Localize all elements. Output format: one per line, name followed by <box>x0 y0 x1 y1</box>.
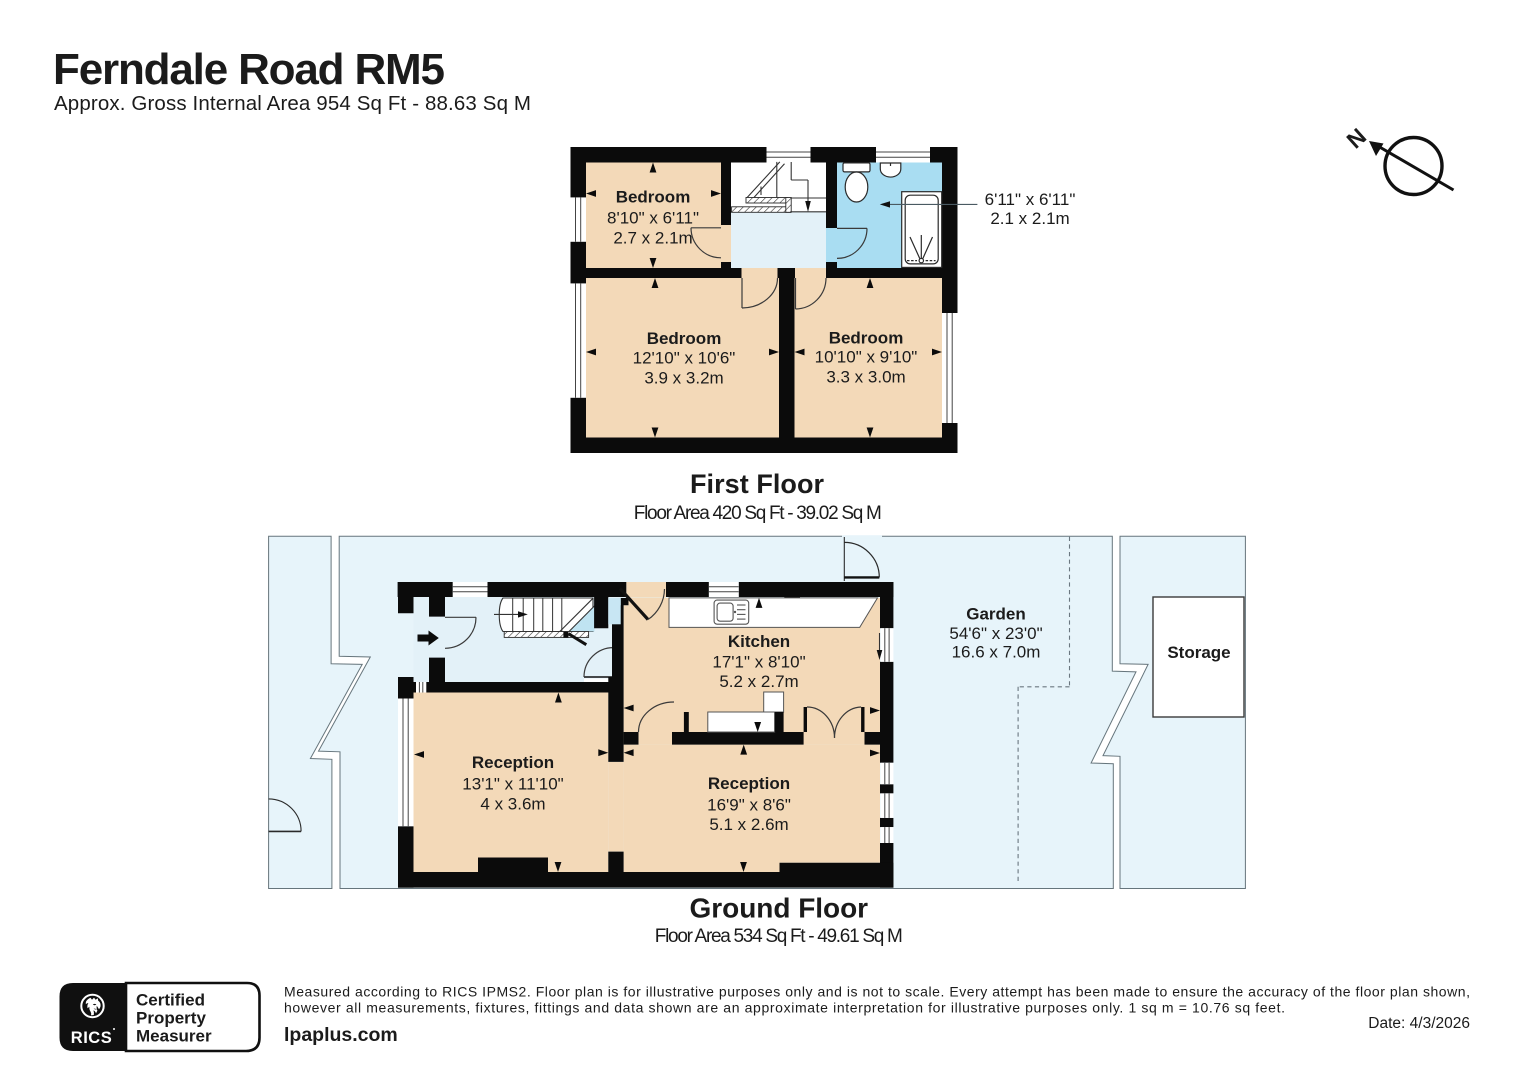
svg-text:17'1" x 8'10": 17'1" x 8'10" <box>712 653 805 672</box>
svg-text:12'10" x 10'6": 12'10" x 10'6" <box>633 349 736 368</box>
svg-text:Bedroom: Bedroom <box>616 188 691 207</box>
svg-text:Floor Area 534 Sq Ft - 49.61 S: Floor Area 534 Sq Ft - 49.61 Sq M <box>655 926 903 947</box>
svg-text:5.2 x 2.7m: 5.2 x 2.7m <box>719 672 798 691</box>
svg-text:Reception: Reception <box>708 774 790 793</box>
svg-text:16'9" x 8'6": 16'9" x 8'6" <box>707 796 791 815</box>
svg-text:54'6" x 23'0": 54'6" x 23'0" <box>949 624 1042 643</box>
svg-text:Kitchen: Kitchen <box>728 632 790 651</box>
svg-text:Reception: Reception <box>472 753 554 772</box>
svg-text:8'10" x 6'11": 8'10" x 6'11" <box>607 208 699 227</box>
svg-text:Ferndale Road RM5: Ferndale Road RM5 <box>53 45 445 94</box>
svg-text:lpaplus.com: lpaplus.com <box>284 1024 398 1046</box>
svg-text:6'11" x 6'11": 6'11" x 6'11" <box>985 190 1076 209</box>
svg-text:16.6 x 7.0m: 16.6 x 7.0m <box>952 643 1041 662</box>
svg-text:Measured according to RICS IPM: Measured according to RICS IPMS2. Floor … <box>284 984 1470 1000</box>
svg-text:Storage: Storage <box>1167 643 1230 662</box>
svg-text:Bedroom: Bedroom <box>647 329 722 348</box>
svg-text:10'10" x 9'10": 10'10" x 9'10" <box>815 348 918 367</box>
svg-text:Approx. Gross Internal Area 95: Approx. Gross Internal Area 954 Sq Ft - … <box>54 92 531 115</box>
svg-text:Measurer: Measurer <box>136 1027 212 1046</box>
svg-text:3.9 x 3.2m: 3.9 x 3.2m <box>644 368 723 387</box>
svg-text:RICS: RICS <box>71 1029 112 1047</box>
svg-text:2.7 x 2.1m: 2.7 x 2.1m <box>613 228 692 247</box>
svg-text:Bedroom: Bedroom <box>829 329 904 348</box>
svg-text:2.1 x 2.1m: 2.1 x 2.1m <box>990 209 1069 228</box>
svg-text:Ground Floor: Ground Floor <box>690 893 869 924</box>
svg-text:5.1 x 2.6m: 5.1 x 2.6m <box>709 815 788 834</box>
svg-text:3.3 x 3.0m: 3.3 x 3.0m <box>826 367 905 386</box>
svg-text:however all measurements, fixt: however all measurements, fixtures, fitt… <box>284 1000 1285 1016</box>
svg-text:Property: Property <box>136 1009 206 1028</box>
svg-text:13'1" x 11'10": 13'1" x 11'10" <box>462 775 563 794</box>
svg-text:Date: 4/3/2026: Date: 4/3/2026 <box>1368 1015 1470 1032</box>
svg-text:Floor Area 420 Sq Ft - 39.02 S: Floor Area 420 Sq Ft - 39.02 Sq M <box>634 503 882 524</box>
svg-text:Certified: Certified <box>136 991 205 1010</box>
svg-text:Garden: Garden <box>966 605 1026 624</box>
svg-text:4 x 3.6m: 4 x 3.6m <box>480 795 545 814</box>
svg-text:First Floor: First Floor <box>690 469 824 499</box>
